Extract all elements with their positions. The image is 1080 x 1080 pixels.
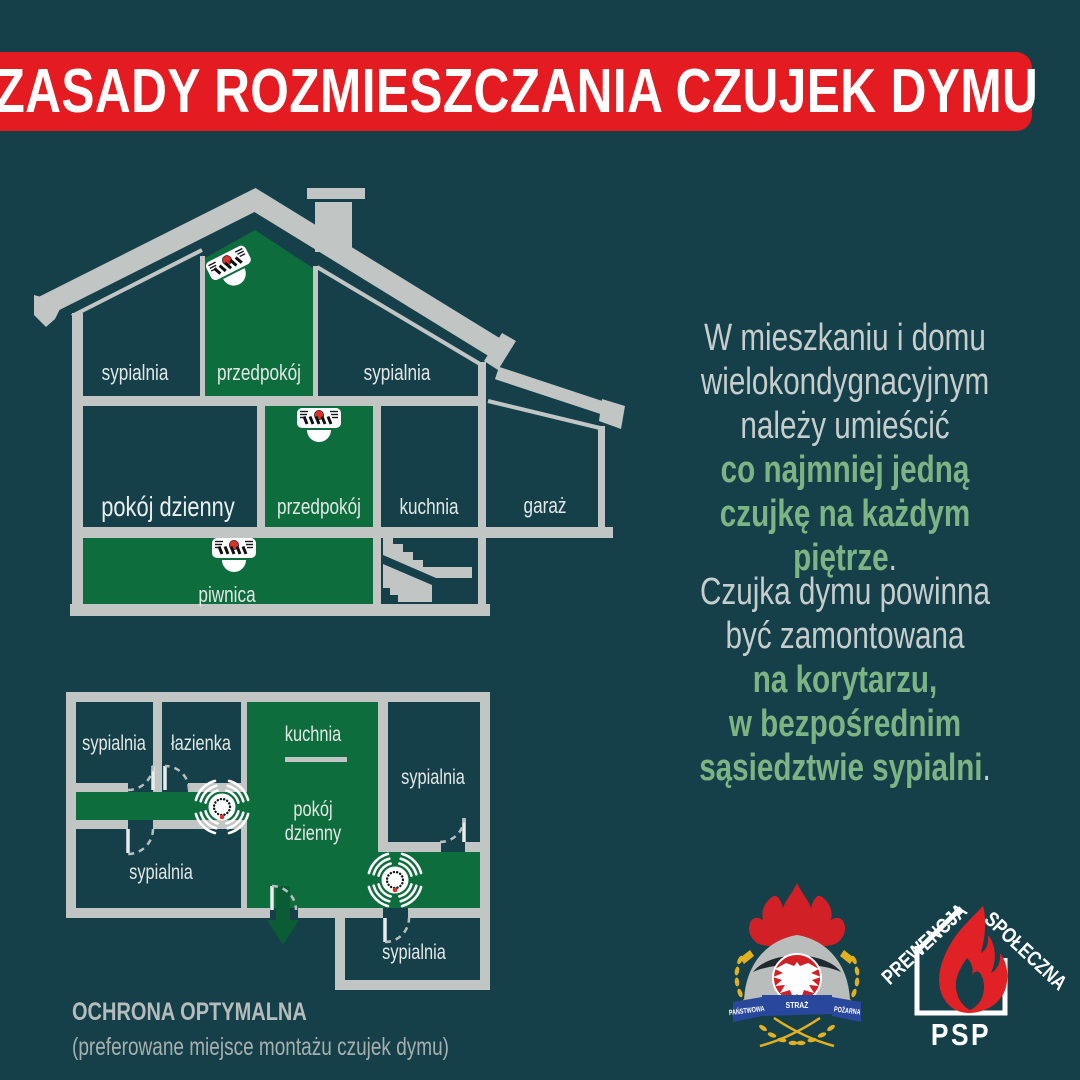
roof bbox=[34, 200, 625, 429]
info-line-accent: czujkę na każdym piętrze. bbox=[670, 492, 1021, 580]
room-label-attic-bedroom-left: sypialnia bbox=[102, 361, 169, 386]
title-banner: ZASADY ROZMIESZCZANIA CZUJEK DYMU bbox=[0, 52, 1032, 131]
info-text-block-2: Czujka dymu powinna być zamontowana na k… bbox=[620, 570, 1070, 790]
room-label-bedroom-bottom-right: sypialnia bbox=[382, 940, 446, 963]
info-line: wielokondygnacyjnym bbox=[670, 360, 1021, 404]
info-line: W mieszkaniu i domu bbox=[670, 316, 1021, 360]
room-label-bedroom-right: sypialnia bbox=[401, 765, 465, 788]
info-line: należy umieścić bbox=[670, 404, 1021, 448]
room-label-attic-hallway: przedpokój bbox=[217, 361, 301, 386]
room-label-kitchen: kuchnia bbox=[399, 495, 458, 520]
info-line-accent: co najmniej jedną bbox=[670, 448, 1021, 492]
room-label-hallway: przedpokój bbox=[277, 495, 361, 520]
info-line: być zamontowana bbox=[670, 614, 1021, 658]
room-label-bedroom-top-left: sypialnia bbox=[82, 731, 146, 754]
room-label-bedroom-bottom-left: sypialnia bbox=[129, 860, 193, 883]
floor-plan-diagram: sypialnia łazienka kuchnia sypialnia pok… bbox=[60, 685, 500, 1000]
room-label-living-room: pokój dzienny bbox=[101, 491, 235, 522]
house-cross-section-diagram: sypialnia przedpokój sypialnia pokój dzi… bbox=[25, 180, 640, 630]
caption-title: OCHRONA OPTYMALNA bbox=[72, 998, 469, 1027]
kitchen-counter-line bbox=[285, 757, 347, 762]
room-label-bathroom: łazienka bbox=[171, 731, 232, 754]
crest-ribbon-text-center: STRAŻ bbox=[786, 1000, 809, 1010]
room-label-kitchen: kuchnia bbox=[285, 722, 342, 745]
psp-name: PSP bbox=[931, 1018, 991, 1052]
stairs-icon bbox=[383, 536, 472, 602]
room-label-living-line2: dzienny bbox=[285, 821, 342, 844]
caption-block: OCHRONA OPTYMALNA (preferowane miejsce m… bbox=[72, 998, 568, 1062]
infographic-smoke-detector-placement: ZASADY ROZMIESZCZANIA CZUJEK DYMU bbox=[0, 0, 1080, 1080]
room-label-attic-bedroom-right: sypialnia bbox=[364, 361, 431, 386]
room-label-basement: piwnica bbox=[198, 583, 255, 608]
logos: PAŃSTWOWA STRAŻ POŻARNA PREWENCJA SPOŁEC… bbox=[725, 870, 1070, 1062]
info-line-accent: na korytarzu, bbox=[670, 658, 1021, 702]
caption-subtitle: (preferowane miejsce montażu czujek dymu… bbox=[72, 1033, 449, 1062]
info-line-accent: w bezpośrednim bbox=[670, 702, 1021, 746]
psp-prevention-logo: PREWENCJA SPOŁECZNA PSP bbox=[878, 899, 1070, 1052]
room-label-garage: garaż bbox=[524, 494, 567, 519]
page-title: ZASADY ROZMIESZCZANIA CZUJEK DYMU bbox=[0, 56, 1038, 127]
info-line: Czujka dymu powinna bbox=[670, 570, 1021, 614]
info-line-accent: sąsiedztwie sypialni. bbox=[670, 746, 1021, 790]
fire-service-crest-logo: PAŃSTWOWA STRAŻ POŻARNA bbox=[728, 883, 861, 1046]
room-label-living-line1: pokój bbox=[293, 797, 332, 820]
info-text-block-1: W mieszkaniu i domu wielokondygnacyjnym … bbox=[620, 316, 1070, 580]
